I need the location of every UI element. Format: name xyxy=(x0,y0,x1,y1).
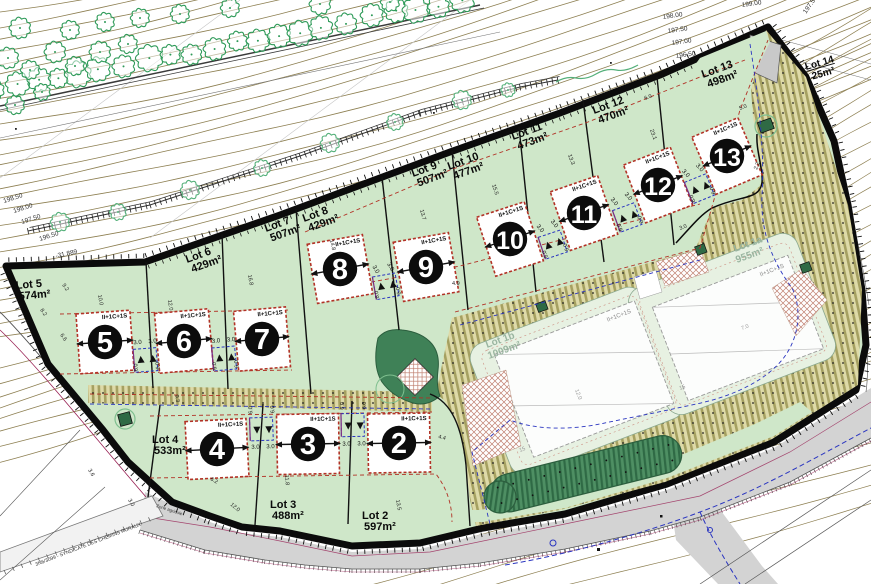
svg-text:11: 11 xyxy=(571,201,598,229)
svg-text:3: 3 xyxy=(300,429,316,461)
svg-text:3.0: 3.0 xyxy=(251,445,260,451)
svg-text:6.0: 6.0 xyxy=(248,406,254,414)
svg-text:488m²: 488m² xyxy=(272,510,304,522)
svg-text:II+1C+1S: II+1C+1S xyxy=(401,416,426,422)
svg-text:6.0: 6.0 xyxy=(340,402,346,410)
svg-text:2: 2 xyxy=(391,428,407,460)
svg-text:5: 5 xyxy=(97,327,113,359)
svg-text:II+1C+1S: II+1C+1S xyxy=(310,417,335,423)
svg-text:6.0: 6.0 xyxy=(362,402,368,410)
svg-text:9: 9 xyxy=(418,252,434,284)
svg-text:6: 6 xyxy=(176,326,192,358)
svg-text:3.0: 3.0 xyxy=(212,338,221,345)
svg-text:3.0: 3.0 xyxy=(266,444,275,450)
svg-text:3.0: 3.0 xyxy=(342,442,351,448)
svg-text:7: 7 xyxy=(254,324,270,356)
svg-text:6.0: 6.0 xyxy=(133,363,140,371)
svg-text:4.9: 4.9 xyxy=(452,281,460,287)
svg-text:11.8: 11.8 xyxy=(283,475,290,486)
svg-text:13: 13 xyxy=(713,144,741,172)
svg-text:4: 4 xyxy=(209,434,225,466)
svg-text:597m²: 597m² xyxy=(364,521,396,533)
svg-text:8: 8 xyxy=(332,254,348,286)
svg-text:533m²: 533m² xyxy=(154,445,186,457)
svg-text:6.0: 6.0 xyxy=(155,362,162,370)
svg-text:12: 12 xyxy=(644,173,672,201)
svg-text:6.0: 6.0 xyxy=(212,362,219,370)
svg-text:3.0: 3.0 xyxy=(227,337,236,344)
svg-text:3.0: 3.0 xyxy=(133,340,142,347)
svg-text:10: 10 xyxy=(496,227,524,255)
svg-text:6.0: 6.0 xyxy=(270,405,276,413)
svg-text:3.0: 3.0 xyxy=(357,441,366,447)
svg-text:6.0: 6.0 xyxy=(234,360,241,368)
svg-text:3.0: 3.0 xyxy=(148,338,157,345)
